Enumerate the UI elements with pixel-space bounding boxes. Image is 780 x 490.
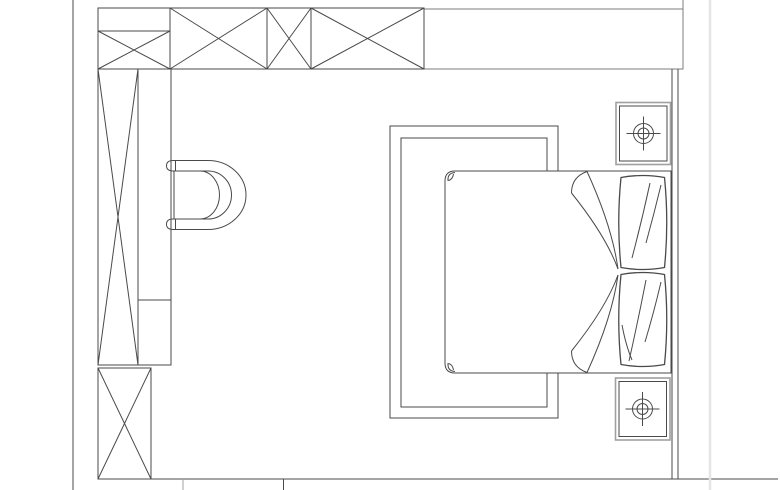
wardrobe-left-side-column — [138, 69, 171, 365]
wardrobe-left — [98, 69, 171, 479]
armchair — [167, 161, 247, 230]
nightstand-top — [616, 103, 671, 165]
wardrobe-top — [98, 8, 424, 69]
floor-plan-canvas — [0, 0, 780, 490]
wardrobe-top-cabinet-a — [98, 8, 170, 69]
armchair-top-armrest — [167, 161, 209, 172]
bedroom-floor-plan-drawing — [0, 0, 780, 490]
walls — [73, 0, 778, 490]
nightstand-bottom — [616, 378, 671, 440]
armchair-bottom-armrest — [167, 219, 209, 230]
armchair-backrest-outer-arc — [208, 161, 246, 230]
armchair-seatback-arc — [200, 171, 220, 219]
top-wall-right-strip — [424, 9, 683, 69]
